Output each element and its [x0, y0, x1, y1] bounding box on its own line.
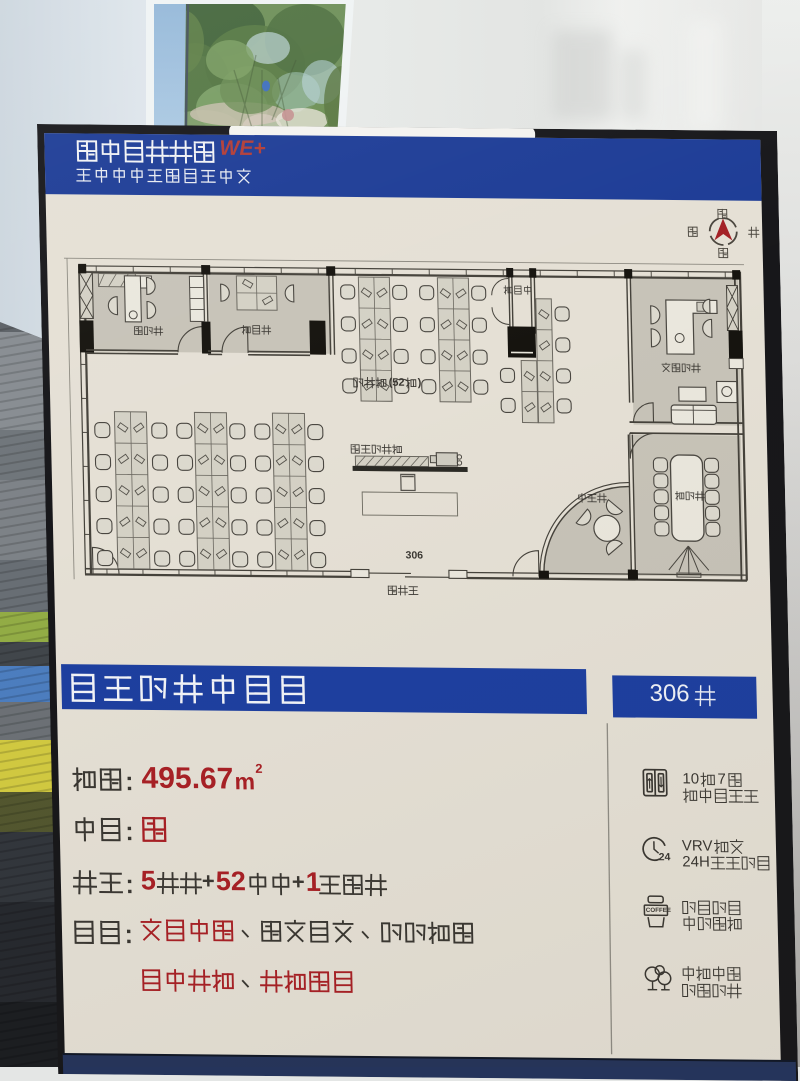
svg-text:306: 306	[649, 680, 690, 707]
svg-text:10: 10	[682, 770, 699, 787]
svg-text:2: 2	[255, 761, 263, 776]
svg-text:24H: 24H	[682, 853, 710, 870]
svg-text:WE+: WE+	[219, 137, 266, 160]
svg-text:7: 7	[717, 771, 726, 788]
svg-text:306: 306	[405, 549, 423, 561]
svg-text:): )	[418, 377, 422, 389]
svg-text:(52: (52	[389, 377, 405, 389]
svg-text:m: m	[234, 768, 255, 794]
svg-text:24: 24	[659, 851, 671, 863]
svg-text:495.67: 495.67	[141, 762, 233, 796]
svg-text:1: 1	[306, 867, 322, 897]
svg-text:+: +	[292, 869, 305, 894]
svg-text:5: 5	[141, 865, 157, 895]
svg-text:52: 52	[216, 866, 247, 896]
svg-text:+: +	[202, 868, 215, 893]
svg-text:COFFEE: COFFEE	[646, 907, 671, 914]
svg-text:VRV: VRV	[682, 837, 713, 854]
